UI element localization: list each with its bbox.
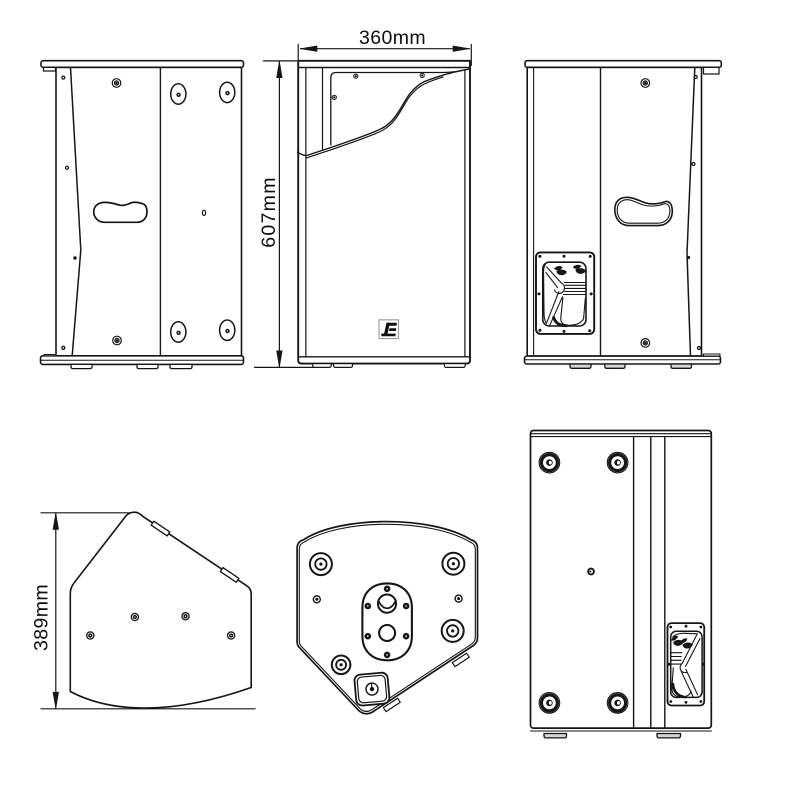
svg-text:360mm: 360mm (359, 27, 426, 49)
svg-text:389mm: 389mm (30, 584, 52, 651)
svg-text:607mm: 607mm (258, 176, 280, 248)
